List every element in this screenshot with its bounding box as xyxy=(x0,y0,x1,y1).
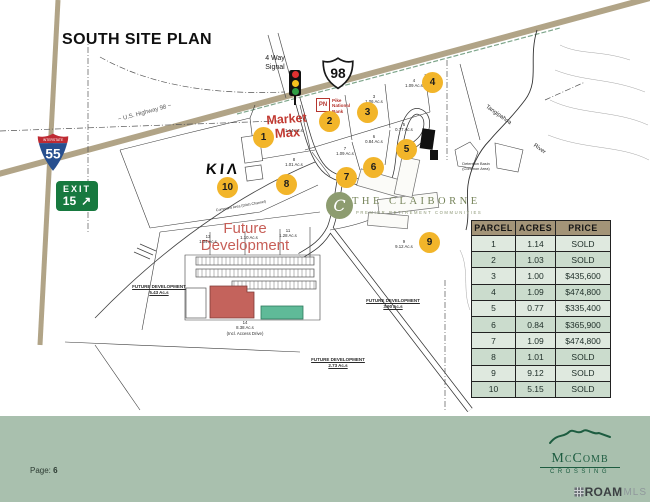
teal-building xyxy=(261,306,303,319)
parcel-5-label: 5 0.77 Ac.s xyxy=(392,122,416,133)
cell-parcel: 1 xyxy=(472,236,516,252)
parcel-14-label: 14 8.38 Ac.s (Incl. Access Drive) xyxy=(214,320,276,336)
pike-monogram: PN xyxy=(316,98,330,112)
table-row: 41.09$474,800 xyxy=(472,284,611,300)
cell-acres: 1.09 xyxy=(516,333,556,349)
cell-parcel: 5 xyxy=(472,300,516,316)
table-row: 71.09$474,800 xyxy=(472,333,611,349)
parcel-marker-2: 2 xyxy=(319,111,340,132)
future-dev-273-label: FUTURE DEVELOPMENT 2.73 Ac.s xyxy=(307,357,369,368)
exit-arrow-icon: ↗ xyxy=(81,194,91,208)
cell-price: SOLD xyxy=(556,349,611,365)
mccomb-name: McComb xyxy=(540,452,620,466)
traffic-light-icon xyxy=(289,70,301,105)
cell-parcel: 9 xyxy=(472,365,516,381)
cell-acres: 1.00 xyxy=(516,268,556,284)
cell-price: SOLD xyxy=(556,252,611,268)
cell-price: $474,800 xyxy=(556,333,611,349)
parcel-marker-4: 4 xyxy=(422,72,443,93)
cell-price: $335,400 xyxy=(556,300,611,316)
header-acres: ACRES xyxy=(516,221,556,236)
header-price: PRICE xyxy=(556,221,611,236)
parcel-7-label: 7 1.09 Ac.s xyxy=(333,146,357,157)
black-building xyxy=(420,128,436,150)
signal-yellow xyxy=(292,80,299,87)
cell-acres: 0.84 xyxy=(516,316,556,332)
roam-name: ROAM xyxy=(585,485,623,499)
cell-acres: 1.01 xyxy=(516,349,556,365)
parcel-13-label: 13 1.04 Ac.s xyxy=(196,234,220,245)
cell-parcel: 2 xyxy=(472,252,516,268)
signal-pole xyxy=(294,96,296,105)
table-row: 81.01SOLD xyxy=(472,349,611,365)
table-row: 21.03SOLD xyxy=(472,252,611,268)
cell-acres: 5.15 xyxy=(516,381,556,397)
claiborne-monogram: C xyxy=(326,192,353,219)
cell-acres: 1.14 xyxy=(516,236,556,252)
page-number: Page: 6 xyxy=(30,466,58,475)
table-row: 99.12SOLD xyxy=(472,365,611,381)
parcel-8-label: 8 1.01 Ac.s xyxy=(282,157,306,168)
four-way-signal-label: 4 Way Signal xyxy=(258,55,292,73)
header-parcel: PARCEL xyxy=(472,221,516,236)
parcel-marker-1: 1 xyxy=(253,127,274,148)
exit-15-sign: EXIT 15 ↗ xyxy=(56,181,98,211)
site-plan-page: { "page": { "title": "SOUTH SITE PLAN", … xyxy=(0,0,650,502)
parcel-marker-10: 10 xyxy=(217,177,238,198)
page-label: Page: xyxy=(30,466,51,475)
parcel-6-label: 6 0.84 Ac.s xyxy=(362,134,386,145)
mccomb-sub: CROSSING xyxy=(540,467,620,475)
table-header-row: PARCEL ACRES PRICE xyxy=(472,221,611,236)
roam-suffix: MLS xyxy=(623,487,647,498)
parking-rows xyxy=(196,257,316,289)
parcel-1-label: 1.14 Ac.s xyxy=(280,128,308,133)
cell-parcel: 6 xyxy=(472,316,516,332)
cell-parcel: 4 xyxy=(472,284,516,300)
table-row: 11.14SOLD xyxy=(472,236,611,252)
parcel-marker-5: 5 xyxy=(396,139,417,160)
detention-basin-label: Detention Basin (Common Area) xyxy=(460,162,492,172)
roam-grid-icon xyxy=(574,487,584,497)
parcel-9-label: 9 9.12 Ac.s xyxy=(392,239,416,250)
exit-word: EXIT xyxy=(63,184,91,194)
cell-parcel: 7 xyxy=(472,333,516,349)
table-row: 60.84$365,900 xyxy=(472,316,611,332)
cell-parcel: 3 xyxy=(472,268,516,284)
cell-price: SOLD xyxy=(556,365,611,381)
cell-price: SOLD xyxy=(556,381,611,397)
parcel-marker-9: 9 xyxy=(419,232,440,253)
black-building-2 xyxy=(430,150,438,160)
claiborne-name: THE CLAIBORNE xyxy=(352,196,481,207)
table-row: 105.15SOLD xyxy=(472,381,611,397)
page-title: SOUTH SITE PLAN xyxy=(62,31,212,49)
kia-logo: KIΛ xyxy=(205,161,241,178)
future-dev-543-label: FUTURE DEVELOPMENT 5.43 Ac.s xyxy=(128,284,190,295)
cell-acres: 9.12 xyxy=(516,365,556,381)
mccomb-crossing-logo: McComb CROSSING xyxy=(540,427,620,475)
route-98-shield: 98 xyxy=(320,55,356,96)
red-building xyxy=(210,286,254,318)
claiborne-tagline: PREMIER RETIREMENT COMMUNITIES xyxy=(356,210,482,215)
table-row: 31.00$435,600 xyxy=(472,268,611,284)
signal-green xyxy=(292,88,299,95)
cell-acres: 0.77 xyxy=(516,300,556,316)
cell-price: $365,900 xyxy=(556,316,611,332)
cell-parcel: 8 xyxy=(472,349,516,365)
footer-band: Page: 6 McComb CROSSING ROAMMLS xyxy=(0,416,650,502)
cell-acres: 1.03 xyxy=(516,252,556,268)
cell-price: $474,800 xyxy=(556,284,611,300)
exit-number: 15 xyxy=(63,194,76,208)
parcel-11-label: 11 1.28 Ac.s xyxy=(276,228,300,239)
cell-price: $435,600 xyxy=(556,268,611,284)
parcel-marker-6: 6 xyxy=(363,157,384,178)
parcel-12-label: 1.10 Ac.s xyxy=(236,235,262,240)
parcel-marker-8: 8 xyxy=(276,174,297,195)
svg-text:55: 55 xyxy=(45,146,61,161)
interstate-55-shield: INTERSTATE 55 xyxy=(35,131,71,178)
parcel-price-table: PARCEL ACRES PRICE 11.14SOLD 21.03SOLD 3… xyxy=(471,220,611,398)
parcel-marker-3: 3 xyxy=(357,102,378,123)
cell-acres: 1.09 xyxy=(516,284,556,300)
signal-red xyxy=(292,71,299,78)
svg-text:INTERSTATE: INTERSTATE xyxy=(43,138,64,142)
cell-parcel: 10 xyxy=(472,381,516,397)
roam-mls-logo: ROAMMLS xyxy=(574,485,647,499)
future-dev-390-label: FUTURE DEVELOPMENT 3.90 Ac.s xyxy=(362,298,424,309)
page-number-value: 6 xyxy=(53,466,57,475)
cell-price: SOLD xyxy=(556,236,611,252)
table-row: 50.77$335,400 xyxy=(472,300,611,316)
mccomb-swoosh-icon xyxy=(548,427,612,447)
hatch-marks xyxy=(134,244,156,259)
svg-text:98: 98 xyxy=(330,66,346,81)
parcel-marker-7: 7 xyxy=(336,167,357,188)
